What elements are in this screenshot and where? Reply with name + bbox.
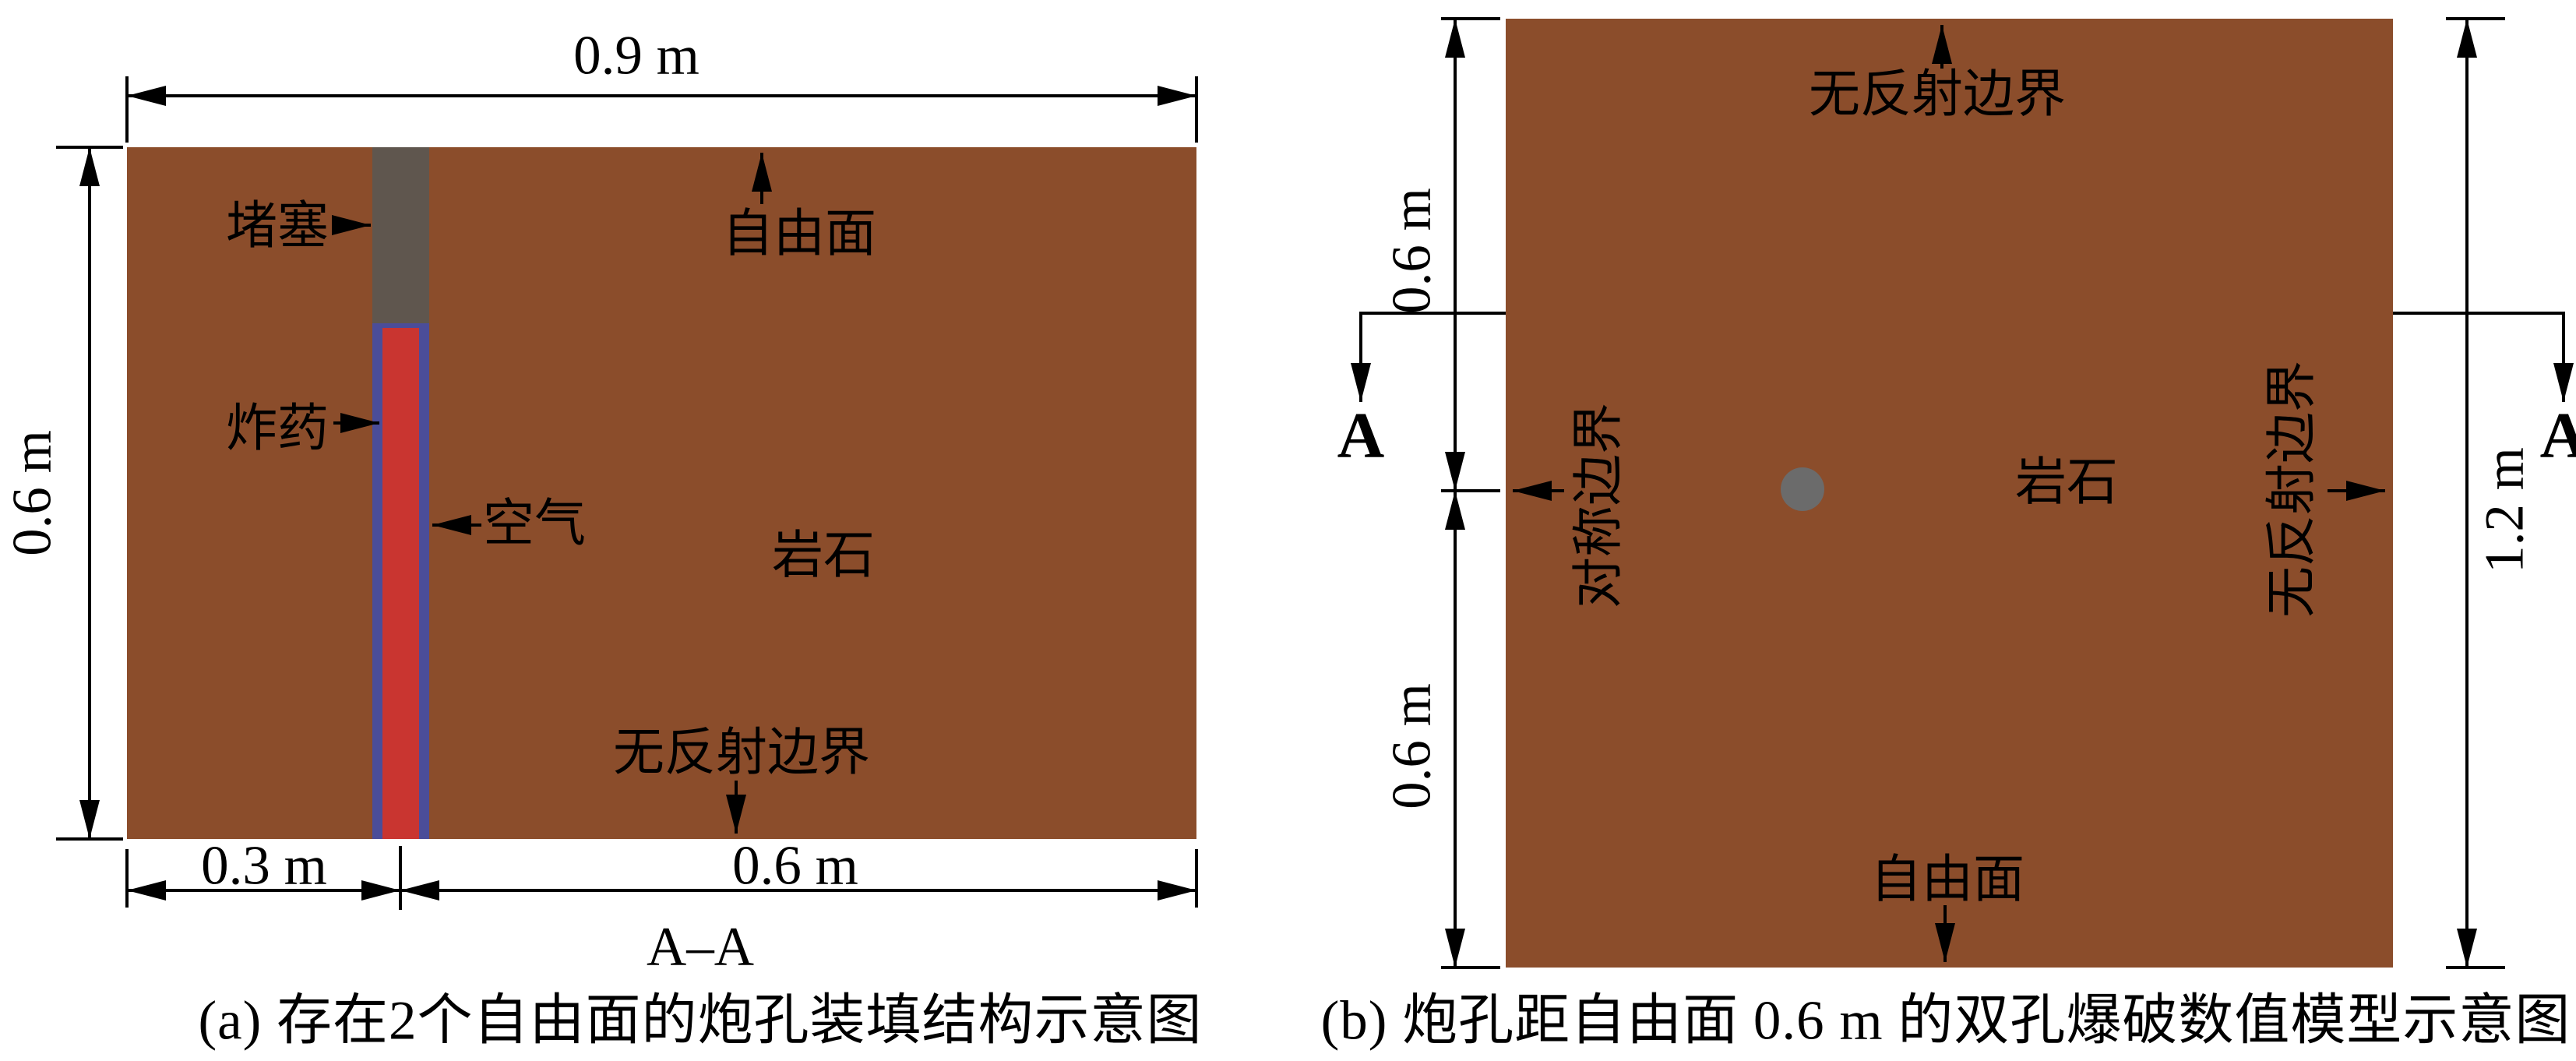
dim-label-06m-bottom: 0.6 m <box>732 839 858 894</box>
panel-a-caption: (a) 存在2个自由面的炮孔装填结构示意图 <box>198 994 1202 1049</box>
rock-label-b: 岩石 <box>2015 457 2118 509</box>
dim-label-12m: 1.2 m <box>2478 447 2533 573</box>
section-letter-a-left: A <box>1337 404 1385 469</box>
section-a-marker-right <box>2393 313 2564 402</box>
section-letter-a-right: A <box>2540 404 2576 469</box>
rock-label-a: 岩石 <box>772 530 875 582</box>
dim-label-03m: 0.3 m <box>201 839 327 894</box>
dim-label-06m-lower: 0.6 m <box>1385 683 1440 809</box>
figure-canvas: 0.9 m 0.6 m 堵塞 炸药 空气 自由面 岩石 无反射边界 0.3 m … <box>0 0 2576 1061</box>
dim-label-06m-upper: 0.6 m <box>1385 188 1440 314</box>
dimension-and-arrow-layer <box>0 0 2576 1061</box>
non-reflecting-right-label: 无反射边界 <box>2267 361 2318 618</box>
stemming-label: 堵塞 <box>226 201 329 252</box>
non-reflecting-label-a: 无反射边界 <box>613 728 870 779</box>
explosive-label: 炸药 <box>226 404 329 455</box>
dim-label-06m-left: 0.6 m <box>5 430 61 556</box>
panel-b-caption: (b) 炮孔距自由面 0.6 m 的双孔爆破数值模型示意图 <box>1321 994 2571 1049</box>
non-reflecting-top-label: 无反射边界 <box>1809 69 2066 121</box>
section-a-marker-left <box>1361 313 1506 402</box>
free-surface-label-a: 自由面 <box>722 209 876 260</box>
dim-label-09m: 0.9 m <box>573 29 700 84</box>
symmetry-boundary-label: 对称边界 <box>1573 403 1625 608</box>
air-label: 空气 <box>483 499 586 550</box>
section-label-aa: A–A <box>647 920 754 975</box>
free-surface-label-b: 自由面 <box>1870 855 2025 906</box>
